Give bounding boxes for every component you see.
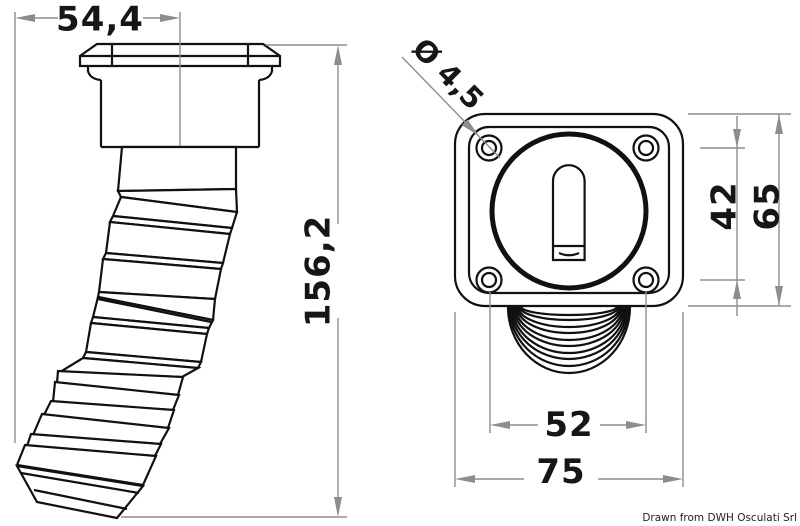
- side-view: [17, 44, 280, 518]
- dim-label-overall-height: 156,2: [298, 215, 338, 328]
- front-view: [455, 114, 683, 373]
- arrowhead: [15, 14, 35, 22]
- arrowhead: [490, 421, 510, 429]
- arrowhead: [334, 45, 342, 65]
- attribution-text: Drawn from DWH Osculati Srl: [642, 512, 797, 524]
- dimension-plate-height: 65: [747, 114, 787, 306]
- hose-corrugated-section: [83, 147, 237, 368]
- drawing-canvas: 54,4 156,2 Ø 4,5 42: [0, 0, 800, 526]
- dim-label-hole-spacing-vertical: 42: [704, 181, 744, 230]
- arrowhead: [663, 475, 683, 483]
- dim-label-hole-spacing-horizontal: 52: [544, 405, 593, 445]
- cap-circle: [492, 134, 646, 288]
- technical-drawing-sheet: 54,4 156,2 Ø 4,5 42: [0, 0, 800, 526]
- dim-label-cap-width: 54,4: [56, 0, 144, 39]
- arrowhead: [455, 475, 475, 483]
- screw-hole-top-left: [477, 136, 502, 161]
- arrowhead: [775, 286, 783, 306]
- arrowhead: [733, 129, 741, 148]
- screw-hole-bottom-left: [477, 268, 502, 293]
- arrowhead: [733, 280, 741, 299]
- dim-label-plate-height: 65: [747, 181, 787, 230]
- screw-hole-bottom-right: [634, 268, 659, 293]
- screw-hole-top-right: [634, 136, 659, 161]
- arrowhead: [334, 497, 342, 517]
- arrowhead: [775, 114, 783, 134]
- dim-label-plate-width: 75: [536, 452, 585, 492]
- dimension-hole-diameter: Ø 4,5: [402, 31, 500, 158]
- arrowhead: [626, 421, 646, 429]
- hose-barbed-tail: [17, 358, 198, 518]
- arrowhead: [160, 14, 180, 22]
- screw-holes: [477, 136, 659, 293]
- thread-coils: [508, 307, 630, 373]
- dimension-hole-spacing-vertical: 42: [704, 116, 744, 316]
- key-slot: [553, 165, 585, 260]
